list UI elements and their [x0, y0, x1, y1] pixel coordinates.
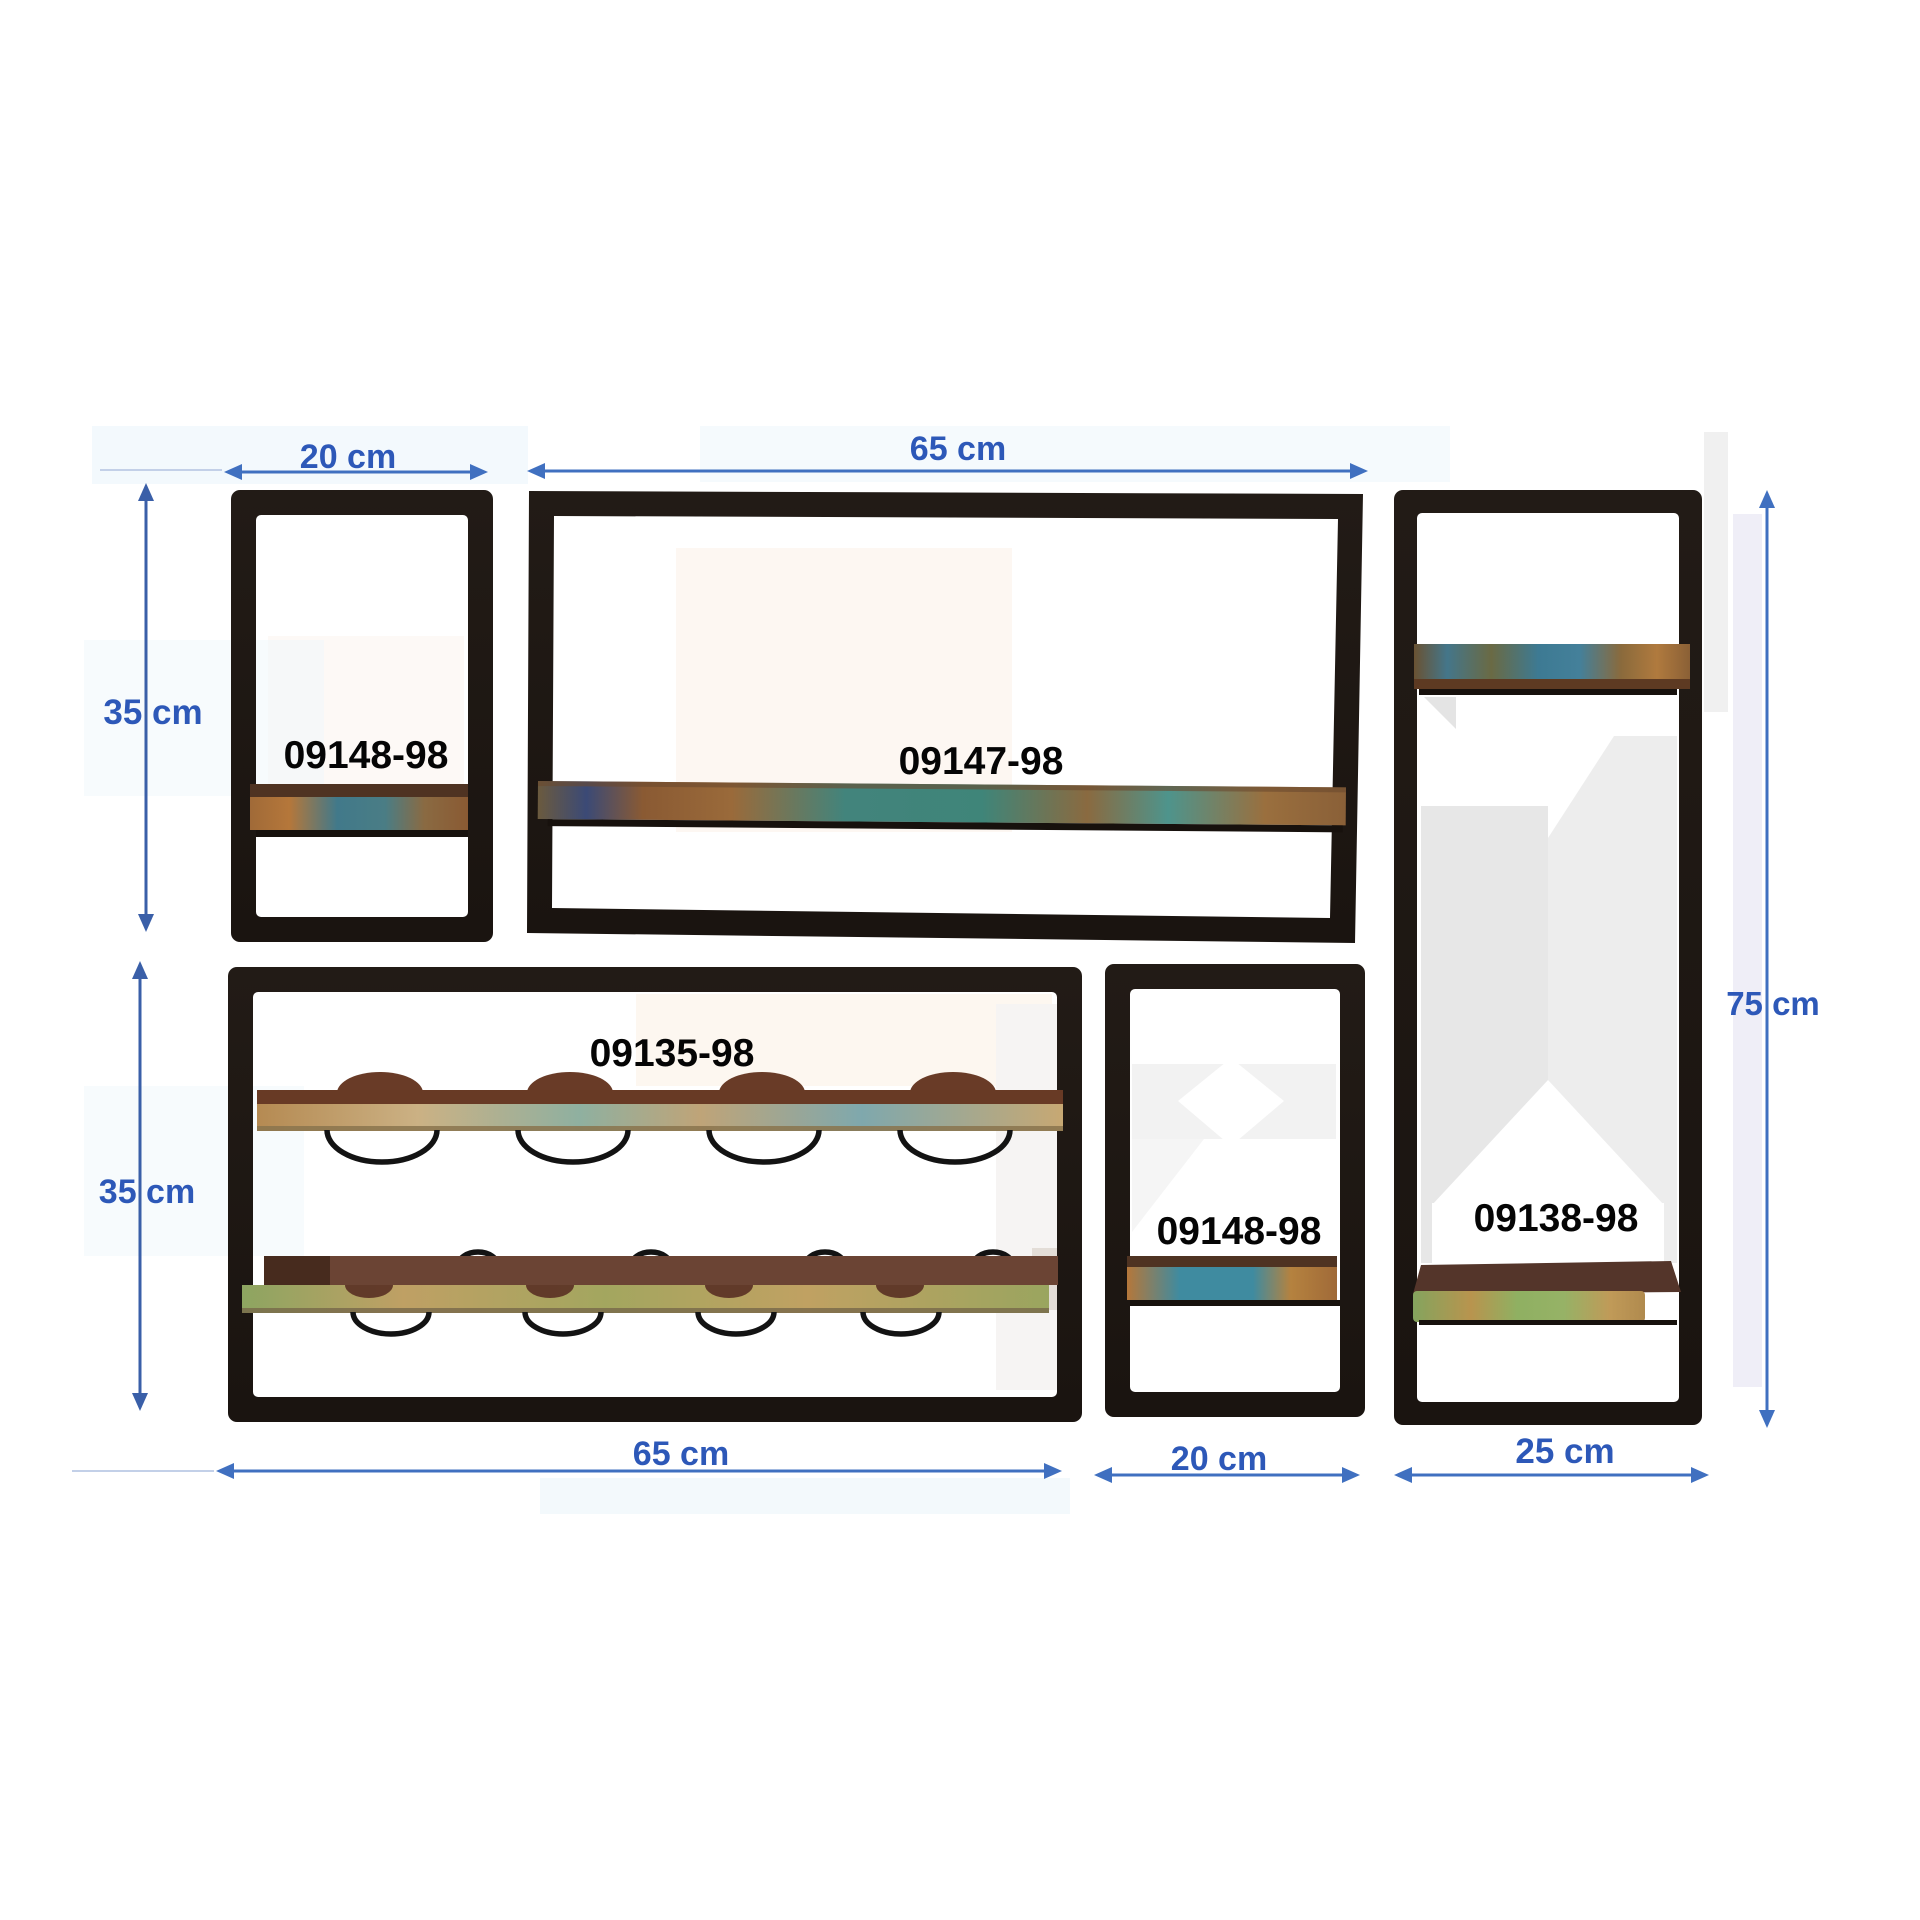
- svg-text:20 cm: 20 cm: [1171, 1440, 1267, 1478]
- svg-text:20 cm: 20 cm: [300, 438, 396, 476]
- svg-text:35 cm: 35 cm: [103, 693, 202, 732]
- svg-text:09135-98: 09135-98: [590, 1032, 755, 1075]
- svg-text:35 cm: 35 cm: [99, 1173, 195, 1211]
- svg-text:09138-98: 09138-98: [1474, 1197, 1639, 1240]
- svg-text:65 cm: 65 cm: [633, 1435, 729, 1473]
- svg-text:09147-98: 09147-98: [899, 740, 1064, 783]
- svg-text:25 cm: 25 cm: [1515, 1432, 1614, 1471]
- svg-text:09148-98: 09148-98: [284, 734, 449, 777]
- svg-text:75 cm: 75 cm: [1726, 985, 1820, 1022]
- svg-text:09148-98: 09148-98: [1157, 1210, 1322, 1253]
- svg-text:65 cm: 65 cm: [910, 430, 1006, 468]
